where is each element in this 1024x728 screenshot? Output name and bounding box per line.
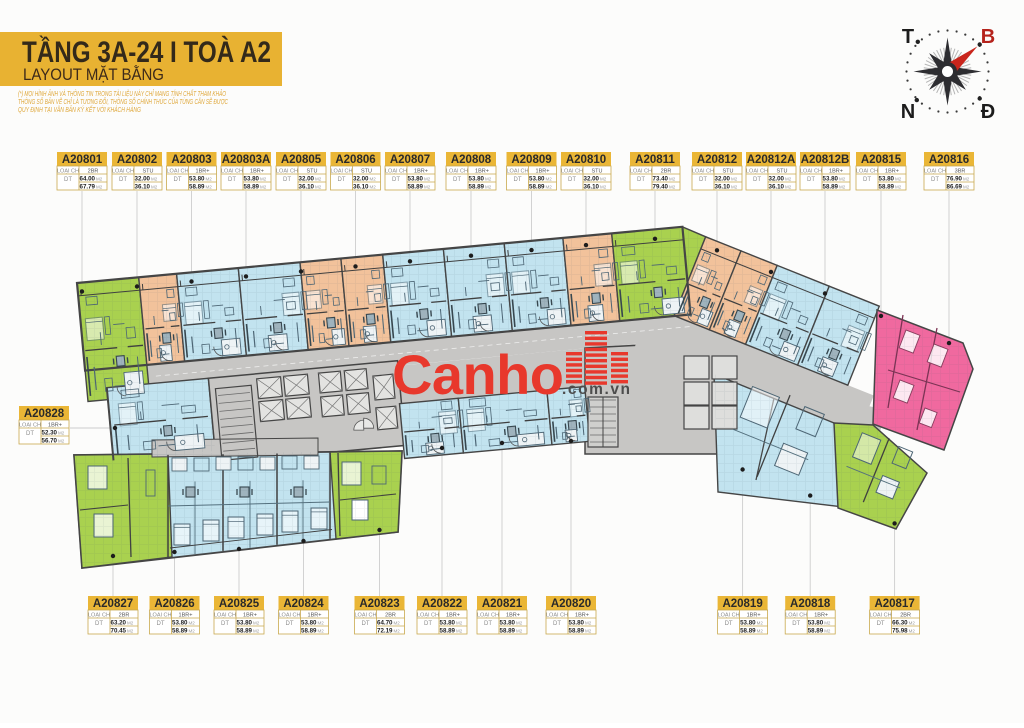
svg-text:STU: STU [361,169,372,175]
svg-text:LOẠI CH: LOẠI CH [800,169,822,175]
svg-text:M2: M2 [370,185,377,190]
svg-text:LOẠI CH: LOẠI CH [57,169,79,175]
svg-text:M2: M2 [151,185,158,190]
svg-text:M2: M2 [260,185,267,190]
svg-text:M2: M2 [895,177,902,182]
svg-text:DT: DT [26,431,34,437]
svg-text:M2: M2 [127,621,134,626]
svg-text:Canho: Canho [392,343,564,406]
svg-text:M2: M2 [151,177,158,182]
svg-text:M2: M2 [824,629,831,634]
svg-text:32.00: 32.00 [584,176,600,183]
svg-text:DT: DT [174,177,182,183]
svg-text:M2: M2 [189,629,196,634]
svg-text:LOẠI CH: LOẠI CH [924,169,946,175]
svg-text:LOẠI CH: LOẠI CH [718,613,740,619]
svg-text:36.10: 36.10 [715,184,731,191]
svg-text:Đ: Đ [981,101,995,123]
svg-text:M2: M2 [206,177,213,182]
svg-text:LOẠI CH: LOẠI CH [354,613,376,619]
svg-text:A20827: A20827 [93,598,133,610]
svg-text:DT: DT [863,177,871,183]
svg-text:53.80: 53.80 [244,176,260,183]
svg-text:DT: DT [392,177,400,183]
svg-text:M2: M2 [456,621,463,626]
svg-text:A20818: A20818 [790,598,831,610]
svg-text:73.40: 73.40 [653,176,669,183]
svg-text:72.19: 72.19 [377,628,393,635]
svg-text:LOẠI CH: LOẠI CH [746,169,768,175]
svg-text:DT: DT [362,621,370,627]
svg-text:58.89: 58.89 [808,628,824,635]
svg-text:75.98: 75.98 [892,628,908,635]
svg-text:M2: M2 [253,621,260,626]
svg-text:DT: DT [637,177,645,183]
svg-text:LOẠI CH: LOẠI CH [870,613,892,619]
svg-text:53.80: 53.80 [569,620,585,627]
svg-text:T: T [902,26,914,48]
svg-text:36.10: 36.10 [135,184,151,191]
svg-text:DT: DT [157,621,165,627]
svg-text:58.89: 58.89 [237,628,253,635]
svg-text:M2: M2 [253,629,260,634]
svg-text:32.00: 32.00 [715,176,731,183]
svg-text:53.80: 53.80 [301,620,317,627]
svg-text:52.30: 52.30 [42,430,58,437]
svg-text:LOẠI CH: LOẠI CH [166,169,188,175]
svg-text:M2: M2 [394,629,401,634]
svg-text:A20811: A20811 [635,154,675,166]
svg-text:M2: M2 [585,621,592,626]
svg-text:M2: M2 [424,177,431,182]
svg-text:LOẠI CH: LOẠI CH [477,613,499,619]
svg-text:A20828: A20828 [24,408,65,420]
svg-text:DT: DT [283,177,291,183]
svg-text:A20816: A20816 [929,154,969,166]
svg-text:LOẠI CH: LOẠI CH [88,613,110,619]
svg-text:36.10: 36.10 [353,184,369,191]
svg-text:66.30: 66.30 [892,620,908,627]
svg-text:STU: STU [143,169,154,175]
svg-text:53.80: 53.80 [823,176,839,183]
svg-text:DT: DT [228,177,236,183]
svg-text:M2: M2 [757,629,764,634]
svg-text:DT: DT [553,621,561,627]
svg-text:DT: DT [699,177,707,183]
svg-text:DT: DT [753,177,761,183]
svg-text:53.80: 53.80 [879,176,895,183]
svg-text:79.40: 79.40 [653,184,669,191]
svg-text:53.80: 53.80 [808,620,824,627]
svg-text:M2: M2 [963,185,970,190]
svg-text:M2: M2 [456,629,463,634]
svg-text:M2: M2 [206,185,213,190]
svg-text:M2: M2 [909,621,916,626]
svg-text:1BR+: 1BR+ [250,169,264,175]
svg-text:67.79: 67.79 [80,184,96,191]
svg-text:M2: M2 [318,621,325,626]
svg-text:LOẠI CH: LOẠI CH [692,169,714,175]
svg-text:A20810: A20810 [566,154,606,166]
svg-text:B: B [981,26,995,48]
svg-text:A20801: A20801 [62,154,103,166]
svg-text:86.69: 86.69 [947,184,963,191]
svg-text:32.00: 32.00 [135,176,151,183]
svg-text:M2: M2 [839,185,846,190]
svg-text:M2: M2 [424,185,431,190]
svg-text:LOẠI CH: LOẠI CH [785,613,807,619]
svg-text:A20803: A20803 [171,154,211,166]
svg-text:DT: DT [807,177,815,183]
svg-text:A20808: A20808 [451,154,492,166]
svg-text:DT: DT [338,177,346,183]
svg-text:M2: M2 [785,185,792,190]
svg-text:M2: M2 [96,177,103,182]
svg-text:A20807: A20807 [390,154,430,166]
svg-text:A20806: A20806 [335,154,375,166]
svg-text:1BR+: 1BR+ [814,613,828,619]
svg-text:M2: M2 [585,629,592,634]
svg-text:64.70: 64.70 [377,620,393,627]
svg-text:DT: DT [64,177,72,183]
svg-text:LOẠI CH: LOẠI CH [214,613,236,619]
svg-text:DT: DT [453,177,461,183]
svg-text:58.89: 58.89 [440,628,456,635]
svg-text:M2: M2 [127,629,134,634]
svg-text:A20821: A20821 [482,598,523,610]
svg-text:M2: M2 [516,621,523,626]
svg-text:DT: DT [877,621,885,627]
svg-text:M2: M2 [546,177,553,182]
svg-text:32.00: 32.00 [299,176,315,183]
svg-text:53.80: 53.80 [529,176,545,183]
svg-text:A20817: A20817 [874,598,914,610]
svg-text:DT: DT [286,621,294,627]
svg-text:36.10: 36.10 [299,184,315,191]
svg-text:M2: M2 [669,185,676,190]
svg-text:M2: M2 [315,185,322,190]
svg-text:A20805: A20805 [281,154,322,166]
svg-text:M2: M2 [370,177,377,182]
svg-text:58.89: 58.89 [172,628,188,635]
svg-text:58.89: 58.89 [408,184,424,191]
svg-text:2BR: 2BR [385,613,396,619]
svg-text:(*) MỌI HÌNH ẢNH VÀ THÔNG TIN: (*) MỌI HÌNH ẢNH VÀ THÔNG TIN TRONG TÀI … [18,89,226,98]
svg-text:A20824: A20824 [283,598,324,610]
svg-text:M2: M2 [516,629,523,634]
svg-text:2BR: 2BR [119,613,130,619]
svg-text:53.80: 53.80 [469,176,485,183]
svg-text:M2: M2 [58,439,65,444]
svg-text:LOẠI CH: LOẠI CH [278,613,300,619]
svg-text:1BR+: 1BR+ [536,169,550,175]
svg-text:TẦNG 3A-24 I TOÀ A2: TẦNG 3A-24 I TOÀ A2 [22,35,271,69]
svg-text:DT: DT [931,177,939,183]
svg-text:LOẠI CH: LOẠI CH [149,613,171,619]
svg-text:1BR+: 1BR+ [506,613,520,619]
svg-text:32.00: 32.00 [769,176,785,183]
svg-text:M2: M2 [600,185,607,190]
svg-text:M2: M2 [963,177,970,182]
svg-text:A20812: A20812 [697,154,737,166]
svg-text:1BR+: 1BR+ [446,613,460,619]
svg-text:DT: DT [119,177,127,183]
svg-text:53.80: 53.80 [237,620,253,627]
svg-text:A20803A: A20803A [222,154,271,166]
svg-text:58.89: 58.89 [189,184,205,191]
svg-text:1BR+: 1BR+ [575,613,589,619]
svg-text:1BR+: 1BR+ [747,613,761,619]
svg-text:1BR+: 1BR+ [196,169,210,175]
svg-text:A20825: A20825 [219,598,260,610]
svg-text:1BR+: 1BR+ [885,169,899,175]
svg-text:M2: M2 [895,185,902,190]
svg-text:M2: M2 [824,621,831,626]
svg-text:DT: DT [95,621,103,627]
svg-text:3BR: 3BR [955,169,966,175]
svg-text:A20809: A20809 [511,154,551,166]
svg-text:M2: M2 [757,621,764,626]
svg-text:76.90: 76.90 [947,176,963,183]
svg-text:M2: M2 [600,177,607,182]
svg-text:58.89: 58.89 [244,184,260,191]
svg-text:LOẠI CH: LOẠI CH [506,169,528,175]
svg-text:A20819: A20819 [722,598,762,610]
svg-text:58.89: 58.89 [301,628,317,635]
svg-text:M2: M2 [485,177,492,182]
svg-text:32.00: 32.00 [353,176,369,183]
svg-text:58.89: 58.89 [740,628,756,635]
svg-text:STU: STU [307,169,318,175]
svg-text:53.80: 53.80 [740,620,756,627]
svg-text:DT: DT [514,177,522,183]
svg-text:LOẠI CH: LOẠI CH [417,613,439,619]
svg-text:56.70: 56.70 [42,438,58,445]
svg-text:2BR: 2BR [88,169,99,175]
svg-text:A20815: A20815 [861,154,902,166]
svg-text:1BR+: 1BR+ [829,169,843,175]
svg-text:LOẠI CH: LOẠI CH [112,169,134,175]
svg-text:M2: M2 [315,177,322,182]
svg-text:DT: DT [792,621,800,627]
svg-text:64.00: 64.00 [80,176,96,183]
svg-text:LOẠI CH: LOẠI CH [546,613,568,619]
svg-text:1BR+: 1BR+ [48,423,62,429]
svg-text:LOẠI CH: LOẠI CH [561,169,583,175]
svg-text:M2: M2 [318,629,325,634]
svg-text:36.10: 36.10 [769,184,785,191]
svg-text:A20812A: A20812A [747,154,796,166]
svg-text:LOẠI CH: LOẠI CH [630,169,652,175]
svg-text:1BR+: 1BR+ [179,613,193,619]
svg-text:DT: DT [424,621,432,627]
svg-text:DT: DT [725,621,733,627]
svg-text:LOẠI CH: LOẠI CH [446,169,468,175]
svg-text:LOẠI CH: LOẠI CH [330,169,352,175]
svg-text:A20812B: A20812B [801,154,850,166]
svg-text:LOẠI CH: LOẠI CH [856,169,878,175]
svg-text:58.89: 58.89 [879,184,895,191]
svg-text:DT: DT [484,621,492,627]
svg-text:1BR+: 1BR+ [475,169,489,175]
svg-text:M2: M2 [785,177,792,182]
svg-text:36.10: 36.10 [584,184,600,191]
svg-text:M2: M2 [546,185,553,190]
svg-text:LOẠI CH: LOẠI CH [276,169,298,175]
svg-text:M2: M2 [731,185,738,190]
svg-text:DT: DT [221,621,229,627]
svg-text:M2: M2 [96,185,103,190]
svg-text:58.89: 58.89 [469,184,485,191]
svg-text:M2: M2 [669,177,676,182]
svg-text:.com.vn: .com.vn [562,381,630,398]
svg-text:N: N [901,101,915,123]
svg-text:M2: M2 [485,185,492,190]
svg-text:M2: M2 [909,629,916,634]
svg-text:LOẠI CH: LOẠI CH [221,169,243,175]
svg-text:58.89: 58.89 [569,628,585,635]
svg-text:STU: STU [777,169,788,175]
svg-text:A20822: A20822 [422,598,462,610]
svg-text:58.89: 58.89 [500,628,516,635]
svg-text:1BR+: 1BR+ [414,169,428,175]
svg-text:58.89: 58.89 [529,184,545,191]
svg-text:DT: DT [568,177,576,183]
svg-text:2BR: 2BR [900,613,911,619]
svg-text:THÔNG SỐ BẢN VẼ CHỈ LÀ TƯƠNG Đ: THÔNG SỐ BẢN VẼ CHỈ LÀ TƯƠNG ĐỐI, THÔNG … [18,97,229,106]
svg-text:A20826: A20826 [154,598,194,610]
svg-text:1BR+: 1BR+ [243,613,257,619]
svg-text:70.45: 70.45 [111,628,127,635]
svg-text:M2: M2 [260,177,267,182]
svg-text:LAYOUT MẶT BẰNG: LAYOUT MẶT BẰNG [23,65,164,84]
svg-text:53.80: 53.80 [172,620,188,627]
svg-text:A20820: A20820 [551,598,591,610]
svg-text:M2: M2 [58,431,65,436]
svg-text:M2: M2 [189,621,196,626]
svg-text:63.20: 63.20 [111,620,127,627]
svg-text:STU: STU [592,169,603,175]
svg-text:A20802: A20802 [117,154,157,166]
svg-text:53.80: 53.80 [500,620,516,627]
svg-text:M2: M2 [731,177,738,182]
svg-text:58.89: 58.89 [823,184,839,191]
svg-text:QUY ĐỊNH TẠI VĂN BẢN KÝ KẾT VỚ: QUY ĐỊNH TẠI VĂN BẢN KÝ KẾT VỚI KHÁCH HÀ… [18,105,141,114]
svg-text:LOẠI CH: LOẠI CH [385,169,407,175]
svg-text:1BR+: 1BR+ [308,613,322,619]
svg-text:2BR: 2BR [661,169,672,175]
svg-text:53.80: 53.80 [408,176,424,183]
svg-text:A20823: A20823 [359,598,399,610]
svg-text:M2: M2 [839,177,846,182]
svg-text:53.80: 53.80 [189,176,205,183]
svg-text:53.80: 53.80 [440,620,456,627]
svg-text:STU: STU [723,169,734,175]
svg-text:LOẠI CH: LOẠI CH [19,423,41,429]
svg-text:M2: M2 [394,621,401,626]
